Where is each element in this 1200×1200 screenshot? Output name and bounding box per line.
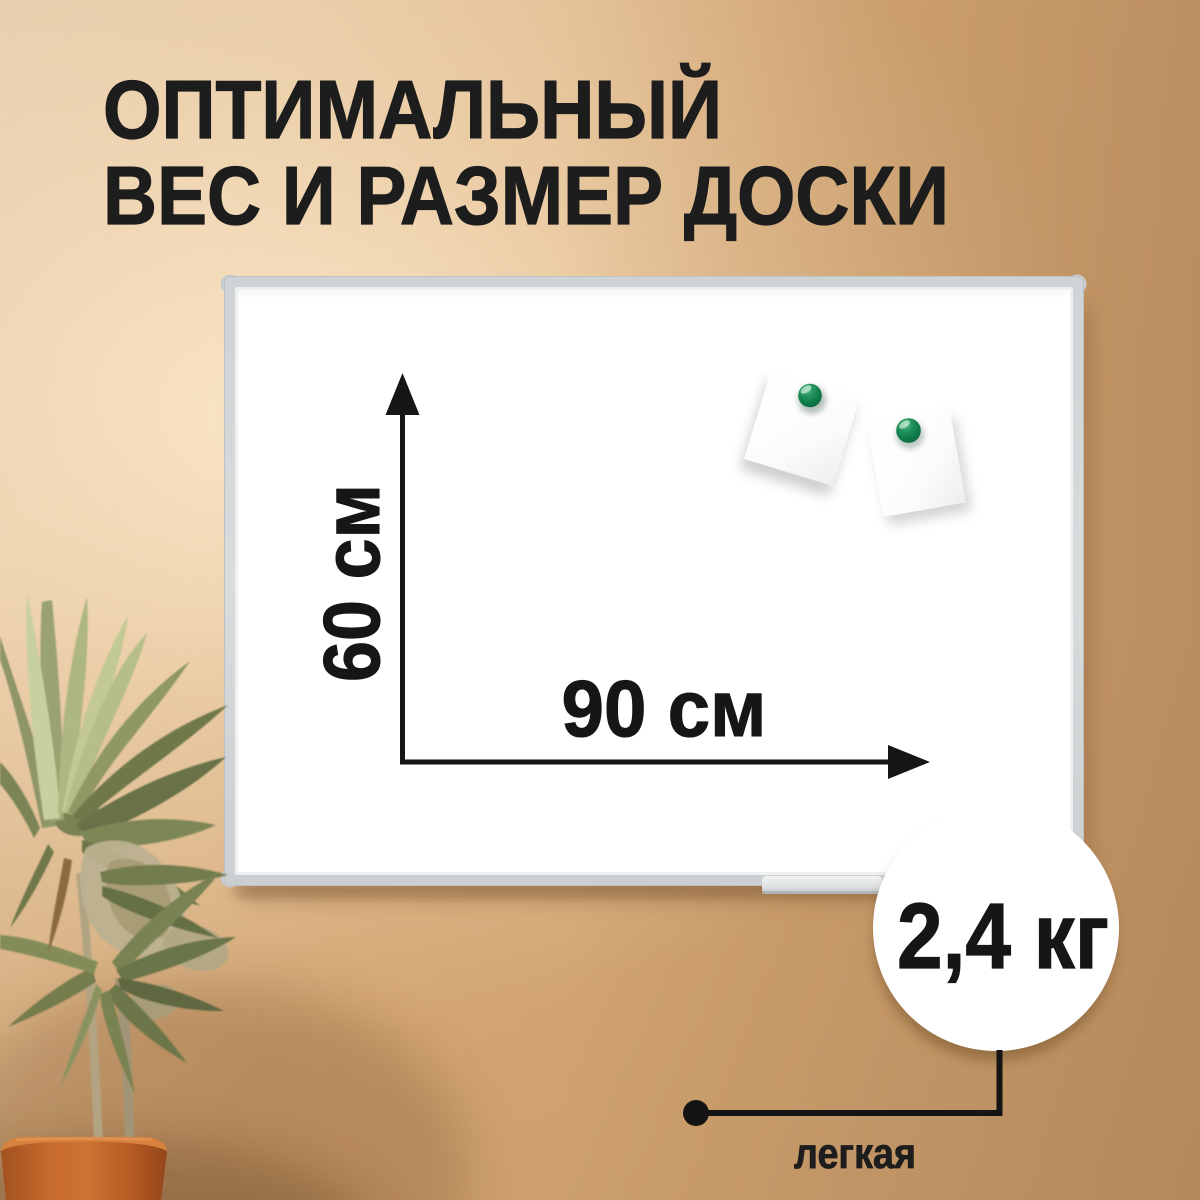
svg-text:2,4 кг: 2,4 кг (897, 884, 1109, 988)
svg-text:60 см: 60 см (307, 484, 396, 682)
svg-text:ОПТИМАЛЬНЫЙ: ОПТИМАЛЬНЫЙ (103, 62, 722, 156)
svg-text:90 см: 90 см (562, 664, 767, 753)
svg-text:легкая: легкая (794, 1130, 916, 1178)
svg-text:ВЕС И РАЗМЕР ДОСКИ: ВЕС И РАЗМЕР ДОСКИ (103, 149, 949, 242)
